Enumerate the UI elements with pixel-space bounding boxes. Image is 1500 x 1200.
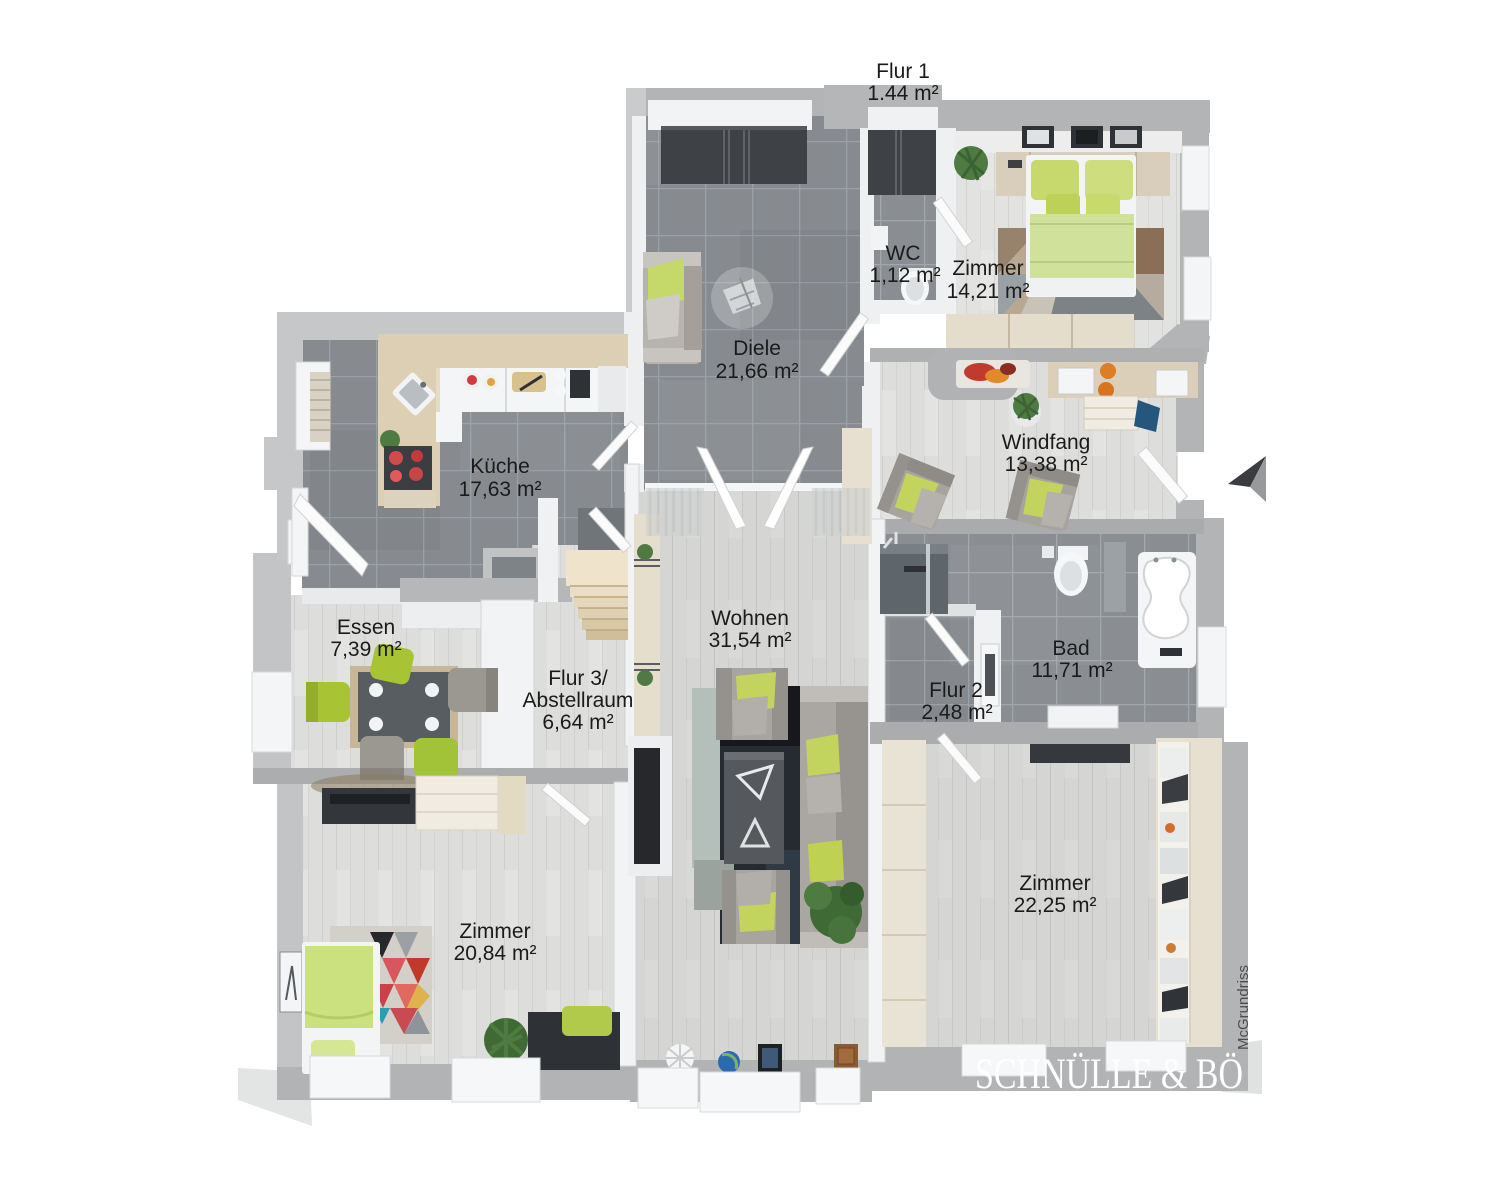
svg-text:Flur 2: Flur 2 [929,679,983,702]
svg-text:SCHNÜLLE & BÖ: SCHNÜLLE & BÖ [975,1051,1243,1098]
svg-text:Zimmer: Zimmer [1019,872,1090,895]
svg-text:Flur 1: Flur 1 [876,60,930,83]
svg-text:Windfang: Windfang [1002,431,1091,454]
svg-text:22,25 m²: 22,25 m² [1014,894,1097,917]
svg-text:6,64 m²: 6,64 m² [542,711,613,734]
svg-text:2,48 m²: 2,48 m² [921,701,992,724]
svg-text:31,54 m²: 31,54 m² [709,629,792,652]
svg-text:Essen: Essen [337,616,395,639]
svg-text:WC: WC [886,242,921,265]
svg-text:Zimmer: Zimmer [459,920,530,943]
svg-text:1,12 m²: 1,12 m² [869,264,940,287]
svg-text:Küche: Küche [470,455,530,478]
svg-text:Bad: Bad [1052,637,1089,660]
svg-text:Wohnen: Wohnen [711,607,789,630]
svg-text:20,84 m²: 20,84 m² [454,942,537,965]
svg-text:11,71 m²: 11,71 m² [1031,659,1112,682]
svg-text:17,63 m²: 17,63 m² [459,478,542,501]
svg-text:14,21 m²: 14,21 m² [947,280,1030,303]
svg-text:McGrundriss: McGrundriss [1235,965,1252,1050]
svg-text:Flur 3/: Flur 3/ [548,667,608,690]
svg-text:Zimmer: Zimmer [952,257,1023,280]
svg-text:7,39 m²: 7,39 m² [330,638,401,661]
svg-text:1.44 m²: 1.44 m² [867,82,938,105]
svg-text:21,66 m²: 21,66 m² [716,360,799,383]
svg-text:Abstellraum: Abstellraum [523,689,634,712]
svg-text:13,38 m²: 13,38 m² [1005,453,1088,476]
svg-text:Diele: Diele [733,337,781,360]
